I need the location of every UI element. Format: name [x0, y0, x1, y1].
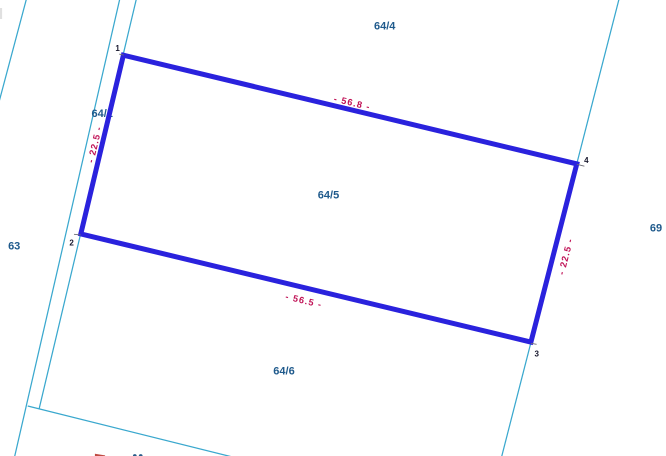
- svg-text:3: 3: [534, 350, 539, 359]
- svg-text:64/6: 64/6: [273, 366, 294, 378]
- svg-text:4: 4: [584, 156, 589, 165]
- svg-text:63: 63: [8, 241, 20, 253]
- svg-text:1: 1: [115, 44, 120, 53]
- svg-text:69: 69: [650, 222, 662, 234]
- svg-text:64/5: 64/5: [318, 189, 339, 201]
- svg-text:64/4: 64/4: [374, 21, 396, 33]
- svg-text:2: 2: [69, 238, 74, 247]
